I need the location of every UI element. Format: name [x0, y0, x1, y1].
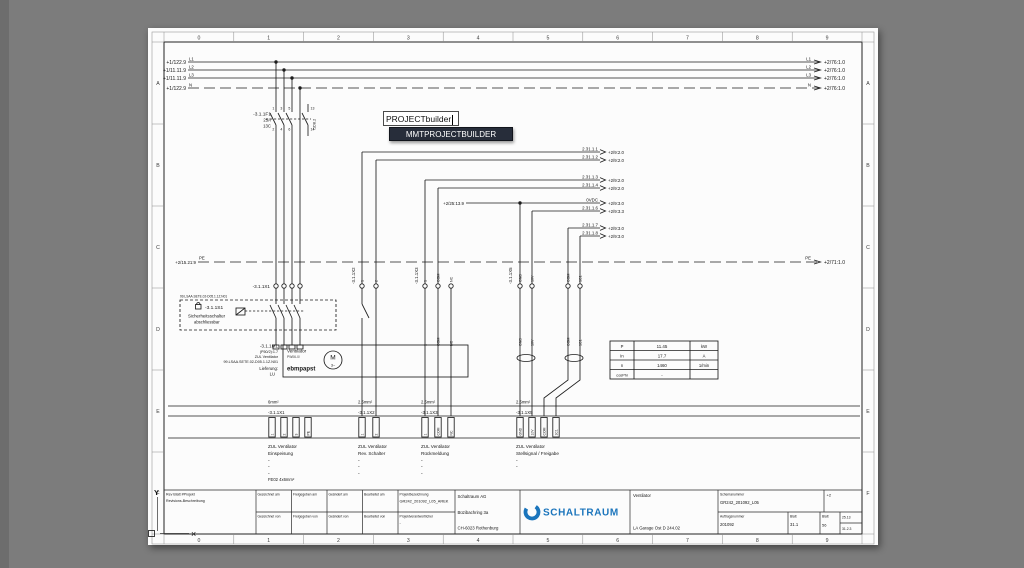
tb-extra: 25.13 [842, 516, 851, 520]
strip-pin: GND [518, 427, 522, 435]
title-block: Rev Blatt #Projekt Revisions-Beschreibun… [164, 490, 862, 534]
ruler-col: 4 [477, 36, 480, 42]
doc-title: Ventilator [633, 493, 651, 498]
bus-right-ref: +2/76:1.0 [824, 60, 845, 66]
ruler-col: 6 [616, 36, 619, 42]
tb-field-label: Gezeichnet von [258, 515, 281, 519]
rev-header: Rev Blatt #Projekt [166, 493, 195, 497]
doc-subtitle: LA Garage Ost D 244.02 [633, 526, 681, 531]
ruler-col: 3 [407, 538, 410, 544]
wire-ref: +2/9:3.0 [608, 226, 625, 231]
wire-label: 2.31.1.2 [582, 154, 598, 159]
wire-ref: +2/9:3.0 [608, 201, 625, 206]
bus-name: L2 [189, 65, 194, 70]
sheet-label: Blatt [790, 515, 797, 519]
bus-right-ref: +2/76:1.0 [824, 68, 845, 74]
tb-field-label: Gezeichnet am [258, 493, 280, 497]
ruler-col: 1 [267, 538, 270, 544]
pin-label: COM [567, 274, 571, 282]
company-city: CH-6023 Rothenburg [458, 526, 499, 531]
project-label: Projektbezeichnung [400, 493, 429, 497]
strip-desc: ZUL Ventilator [268, 444, 297, 449]
ruler-col: 7 [686, 538, 689, 544]
x2-tag: -3.1.1X2 [351, 267, 356, 284]
wire-size: 2.5mm² [421, 400, 436, 405]
pin-label: 10V [531, 339, 535, 346]
strip-desc: ZUL Ventilator [358, 444, 387, 449]
wire-size: 2.5mm² [516, 400, 531, 405]
table-cell: A [703, 354, 706, 359]
breaker-pin: 5 [288, 107, 290, 111]
table-cell: 17.7 [658, 354, 667, 359]
schaltraum-logo-icon [523, 503, 541, 521]
tb-field-label: Bearbeitet am [364, 493, 385, 497]
schematic-drawing: 0 1 2 3 4 5 6 7 8 9 0 1 2 3 4 5 6 7 8 [148, 28, 878, 545]
x5-tag: -3.1.1X5 [508, 267, 513, 284]
company-name: Schaltraum AG [458, 494, 488, 499]
ucs-x-axis: × [191, 529, 196, 539]
strip-pin: 1C1 [554, 429, 558, 435]
ruler-col: 8 [756, 36, 759, 42]
pin-label: GND [519, 338, 523, 346]
strip-pin: 1 [360, 434, 364, 436]
breaker-curve: 13C [263, 124, 271, 129]
strip-desc: Stellsignal / Freigabe [516, 451, 559, 456]
strip-pin: COM [542, 427, 546, 435]
strip-tag: -3.1.1X5 [516, 410, 533, 415]
app-canvas: 0 1 2 3 4 5 6 7 8 9 0 1 2 3 4 5 6 7 8 [0, 0, 1024, 568]
wire-pairs: 2.31.1.1 2.31.1.2 2.31.1.3 2.31.1.4 0VDC… [362, 146, 625, 284]
rev-mark: +2 [827, 493, 832, 498]
pin-label: 1C1 [579, 339, 583, 346]
breaker-aux-ref: /1D8.2 [313, 119, 317, 130]
strip-pin: NC [449, 430, 453, 435]
wire-ref: +2/9:2.0 [608, 186, 625, 191]
tb-extra: 31.2.3 [842, 527, 852, 531]
table-cell: 1/min [699, 363, 710, 368]
dash: - [516, 464, 518, 470]
tb-field-label: Geändert am [329, 493, 348, 497]
schematic-sheet: 0 1 2 3 4 5 6 7 8 9 0 1 2 3 4 5 6 7 8 [148, 28, 878, 545]
pin-label: 10V [531, 275, 535, 282]
m1-line: 99.LSAA.SETE.02-D05.1.1Z.N01 [223, 360, 278, 364]
bus-name: L2 [806, 65, 811, 70]
dash: - [268, 471, 270, 477]
m1-line: (P50/2):1.7 [260, 350, 278, 354]
ruler-row: D [866, 327, 870, 333]
tb-field-label: Bearbeitet von [364, 515, 385, 519]
wire-ref: +2/9:2.0 [608, 150, 625, 155]
strip-pin: 10V [530, 429, 534, 436]
ruler-col: 4 [477, 538, 480, 544]
manager-value: - [400, 521, 402, 526]
motor-phase: 3~ [331, 364, 336, 368]
ruler-col: 2 [337, 538, 340, 544]
ruler-row: E [866, 409, 870, 415]
sheet-total-label: Blatt [822, 515, 829, 519]
strip-desc: Einspeisung [268, 451, 293, 456]
table-cell: cosPhi [616, 374, 628, 378]
pin-label: 2 [375, 280, 379, 282]
strip-pin: COM [436, 427, 440, 435]
strip-pin: 1 [423, 434, 427, 436]
ruler-col: 8 [756, 538, 759, 544]
ruler-col: 2 [337, 36, 340, 42]
bus-left-ref: +1/122.9 [166, 86, 186, 92]
order-value: 201092 [720, 522, 735, 527]
autocomplete-suggestion[interactable]: MMTPROJECTBUILDER [389, 127, 513, 141]
motor-title: Ventilator [287, 349, 307, 354]
strip-pin: 3 [294, 434, 298, 436]
pin-label: COM [437, 274, 441, 282]
manager-label: Projektverantwortlicher [400, 515, 434, 519]
wire-label: 0VDC [586, 197, 598, 202]
s1-tag: -3.1.1S1 [205, 305, 223, 311]
ruler-col: 5 [546, 36, 549, 42]
dash: - [358, 464, 360, 470]
company-street: Büzibachring 3a [458, 510, 489, 515]
tb-field-label: Freigegeben von [293, 515, 318, 519]
wire-label: 2.31.1.7 [582, 222, 598, 227]
ruler-row: B [156, 163, 160, 169]
tb-field-label: Freigegeben am [293, 493, 317, 497]
ruler-col: 9 [826, 538, 829, 544]
ruler-col: 0 [197, 538, 200, 544]
wire-size: 2.5mm² [358, 400, 373, 405]
motor-type: PW06-0/ [287, 355, 300, 359]
sheet-total-value: 56 [822, 523, 827, 528]
bus-right-ref: +2/76:1.0 [824, 86, 845, 92]
ruler-col: 7 [686, 36, 689, 42]
mid-terminals: -3.1.1X2 -3.1.1X3 -3.1.1X5 1 2 1 COM NC … [351, 267, 583, 416]
wire-size: 6mm² [268, 400, 279, 405]
schema-label: Schemanummer [720, 493, 745, 497]
strip-desc: Rückmeldung [421, 451, 450, 456]
motor-brand: ebmpapst [287, 367, 315, 373]
pin-label: 1C1 [579, 275, 583, 282]
text-caret [452, 115, 453, 125]
strip-tag: -3.1.1X2 [358, 410, 375, 415]
bus-name: L1 [806, 57, 811, 62]
rev-label: Revisions-Beschreibung [166, 499, 205, 503]
dash: - [358, 471, 360, 477]
ruler-rows-right: A B C D E F [866, 81, 870, 497]
dash: - [358, 458, 360, 464]
pe-left-ref: +2/15.21:9 [175, 260, 196, 265]
ruler-row: D [156, 327, 160, 333]
breaker-pin: 3 [280, 107, 282, 111]
m1-line: ZUL Ventilator [255, 355, 279, 359]
strip-tag: -3.1.1X1 [268, 410, 285, 415]
strip-tag: -3.1.1X3 [421, 410, 438, 415]
ruler-row: A [866, 81, 870, 87]
ruler-row: A [156, 81, 160, 87]
ucs-y-axis: Y [154, 488, 159, 497]
pin-label: 1 [424, 344, 428, 346]
s1-code: 99.LSAA.SETE.02-D05.1.1Z.N01 [180, 295, 227, 299]
strip-desc: ZUL Ventilator [421, 444, 450, 449]
bus-name: N [808, 83, 811, 88]
pin-label: 1 [361, 280, 365, 282]
order-label: Auftragsnummer [720, 515, 745, 519]
strip-pin: 2 [282, 434, 286, 436]
m1-tag: -3.1.1M1 [260, 344, 279, 349]
ruler-col: 5 [546, 538, 549, 544]
ruler-col: 3 [407, 36, 410, 42]
bus-left-ref: +1/122.9 [166, 60, 186, 66]
x3-tag: -3.1.1X3 [414, 267, 419, 284]
ruler-row: E [156, 409, 160, 415]
tb-field-label: Geändert von [329, 515, 349, 519]
pin-label: GND [519, 274, 523, 282]
dash: - [421, 458, 423, 464]
table-cell: n [621, 363, 624, 368]
bus-name: L3 [189, 73, 194, 78]
bus-name: N [189, 83, 192, 88]
breaker-aux-pin: 13 [311, 107, 315, 111]
dash: - [268, 458, 270, 464]
strip-desc: Rev. Schalter [358, 451, 386, 456]
pin-label: NC [450, 276, 454, 282]
breaker-pin: 1 [272, 107, 274, 111]
wire-label: 2.31.1.1 [582, 146, 598, 151]
strip-desc: ZUL Ventilator [516, 444, 545, 449]
ruler-row: B [866, 163, 870, 169]
bus-lines: +1/122.9 +1/11.11.9 +1/11.11.9 +1/122.9 … [163, 57, 845, 92]
bus-left-ref: +1/11.11.9 [163, 76, 186, 82]
breaker-f1: -3.1.1F1 25A 13C 1 3 5 2 4 6 13 14 /1D8.… [253, 62, 316, 284]
strip-pin: 1 [270, 434, 274, 436]
strip-pin: PE [306, 430, 310, 435]
breaker-pin: 6 [288, 128, 290, 132]
pin-label: COM [567, 338, 571, 346]
ruler-col: 1 [267, 36, 270, 42]
ruler-rows-left: A B C D E F [156, 81, 160, 497]
table-cell: - [661, 373, 663, 378]
wire-label: 2.31.1.4 [582, 182, 598, 187]
safety-switch-s1: -3.1.1X1 99.LSAA.SETE.02-D05.1.1Z.N01 -3… [180, 284, 336, 345]
m1-line: Lieferung: [259, 366, 278, 371]
bus-right-ref: +2/76:1.0 [824, 76, 845, 82]
wire-label: 2.31.1.6 [582, 205, 598, 210]
ruler-row: F [866, 491, 869, 497]
ruler-row: C [866, 245, 870, 251]
wire-label: 2.31.1.3 [582, 174, 598, 179]
strip-pin: 2 [374, 434, 378, 436]
vdc-left-ref: +2/25:13.9 [443, 201, 464, 206]
m1-line: LU [270, 372, 275, 377]
motor-data-table: P 11.45 kW In 17.7 A n 1460 1/min cosPhi… [610, 341, 718, 379]
pe-name: PE [805, 256, 811, 261]
table-cell: In [620, 354, 624, 359]
table-cell: 1460 [657, 363, 667, 368]
wire-ref: +2/9:3.0 [608, 234, 625, 239]
motor-m1: M 3~ Ventilator PW06-0/ ebmpapst -3.1.1M… [223, 344, 468, 378]
wire-ref: +2/9:3.3 [608, 209, 625, 214]
table-cell: kW [701, 344, 707, 349]
pin-label: 1 [424, 280, 428, 282]
ucs-origin [149, 531, 155, 537]
ruler-col: 0 [197, 36, 200, 42]
wire-ref: +2/9:2.0 [608, 158, 625, 163]
ruler-col: 9 [826, 36, 829, 42]
motor-symbol: M [330, 355, 335, 362]
dash: - [516, 458, 518, 464]
x1-tag: -3.1.1X1 [253, 284, 271, 289]
project-name-input[interactable]: PROJECTbuilder [383, 111, 459, 126]
terminal-strip: 1 2 3 PE 1 2 1 COM NC GND 10V COM 1C1 6m… [168, 400, 860, 483]
breaker-rating: 25A [263, 118, 271, 123]
table-cell: P [621, 344, 624, 349]
bus-name: L3 [806, 73, 811, 78]
ruler-col: 6 [616, 538, 619, 544]
dash: - [268, 464, 270, 470]
project-value: GR242_201092_L05_AREK [400, 499, 449, 504]
bus-left-ref: +1/11.11.9 [163, 68, 186, 74]
window-edge [0, 0, 9, 568]
breaker-pin: 2 [272, 128, 274, 132]
s1-note: abschliessbar [194, 320, 220, 325]
ruler-row: C [156, 245, 160, 251]
schema-value: GR242_201092_L05 [720, 500, 760, 505]
pe-name: PE [199, 256, 205, 261]
pin-label: COM [437, 338, 441, 346]
feed-cable-note: FE02 4x6mm² [268, 477, 295, 482]
s1-name: Sicherheitsschalter [188, 314, 226, 319]
pin-label: NC [450, 340, 454, 346]
table-cell: 11.45 [657, 344, 668, 349]
project-name-value: PROJECTbuilder [386, 114, 451, 124]
breaker-pin: 4 [280, 128, 282, 132]
wire-ref: +2/9:2.0 [608, 178, 625, 183]
dash: - [421, 464, 423, 470]
wire-label: 2.31.1.8 [582, 230, 598, 235]
dash: - [421, 471, 423, 477]
bus-name: L1 [189, 57, 194, 62]
sheet-value: 31.1 [790, 522, 799, 527]
brand-name: SCHALTRAUM [543, 508, 619, 519]
pe-right-ref: +2/71:1.0 [824, 260, 845, 266]
